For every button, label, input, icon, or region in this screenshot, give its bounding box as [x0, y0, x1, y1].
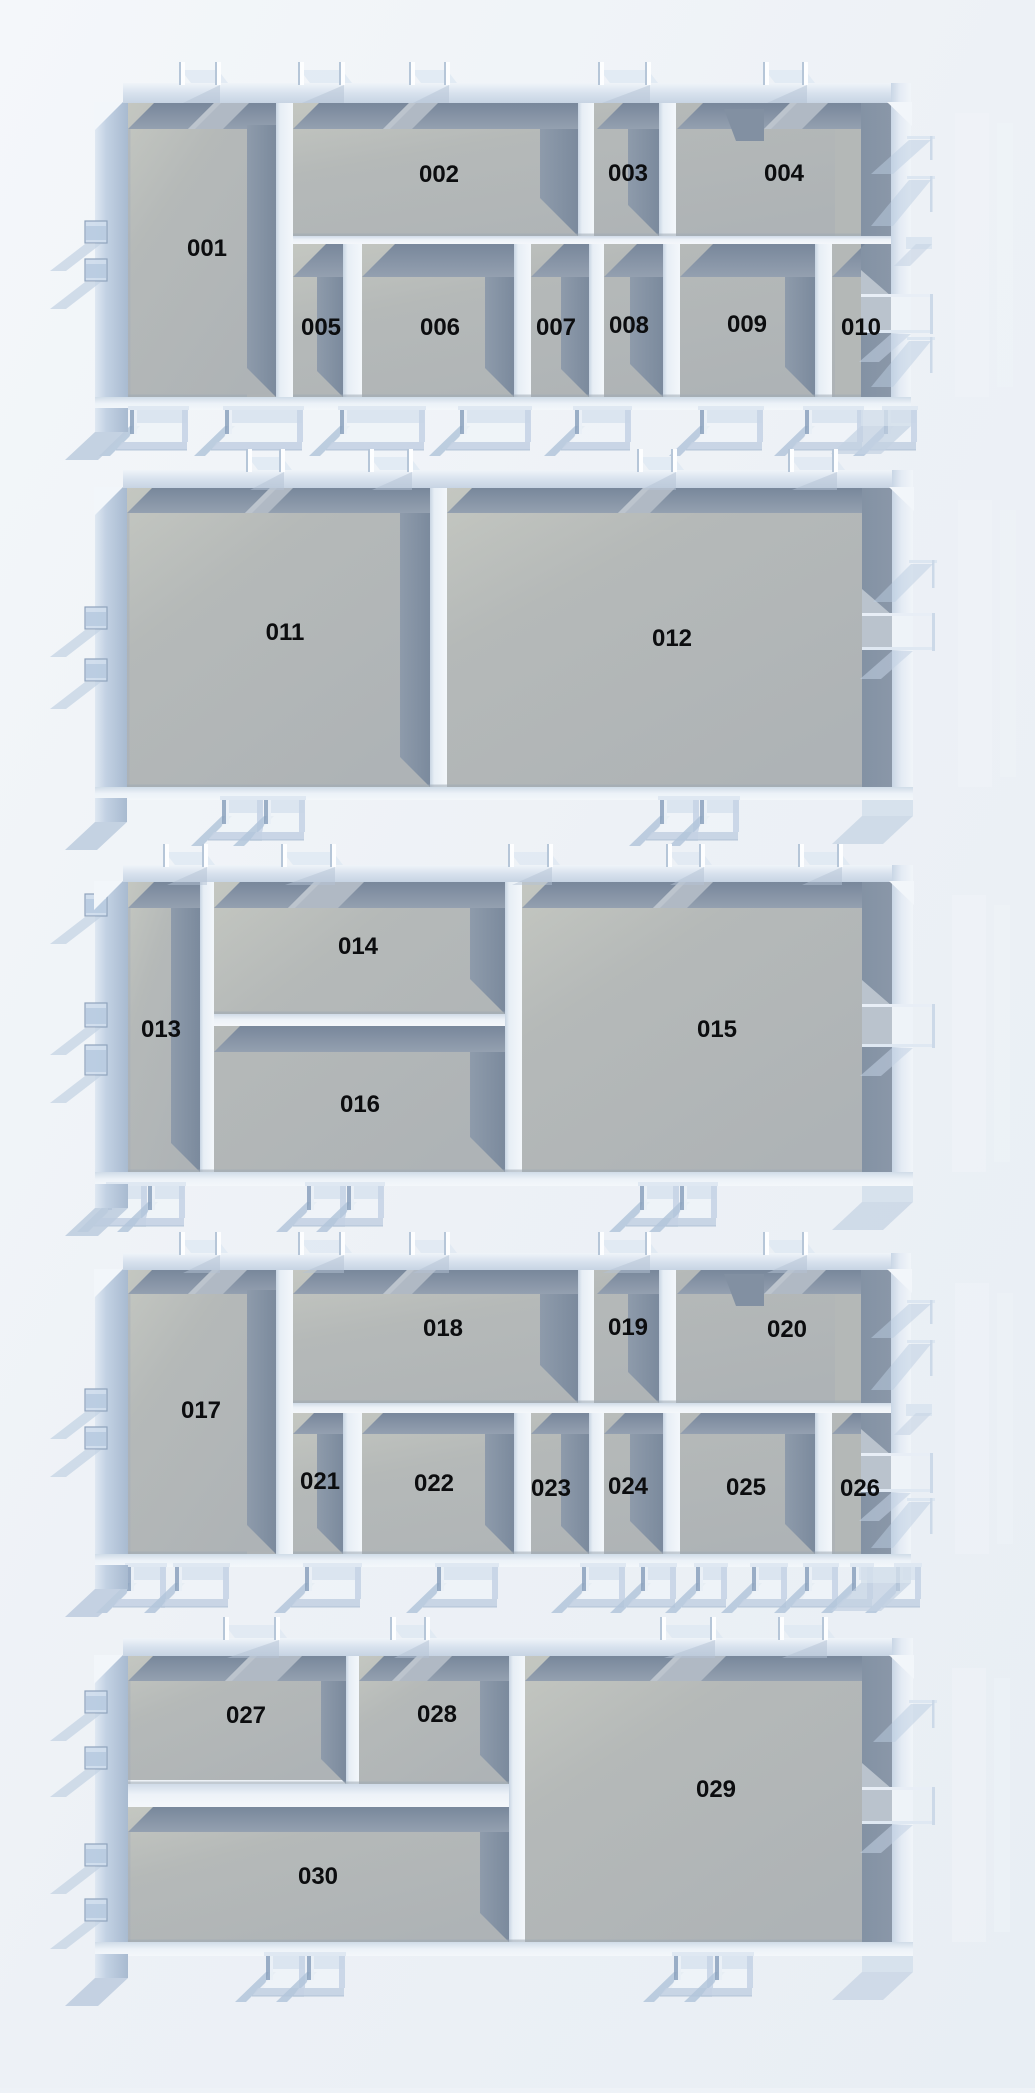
- svg-text:018: 018: [423, 1315, 463, 1342]
- svg-text:020: 020: [767, 1316, 807, 1343]
- svg-text:019: 019: [608, 1314, 648, 1341]
- svg-text:002: 002: [419, 161, 459, 188]
- svg-text:013: 013: [141, 1016, 181, 1043]
- svg-text:030: 030: [298, 1863, 338, 1890]
- svg-text:028: 028: [417, 1701, 457, 1728]
- svg-text:021: 021: [300, 1468, 340, 1495]
- svg-text:014: 014: [338, 933, 379, 960]
- svg-text:022: 022: [414, 1470, 454, 1497]
- svg-text:025: 025: [726, 1474, 766, 1501]
- svg-text:026: 026: [840, 1475, 880, 1502]
- svg-text:006: 006: [420, 314, 460, 341]
- svg-text:023: 023: [531, 1475, 571, 1502]
- svg-text:015: 015: [697, 1016, 737, 1043]
- svg-text:011: 011: [266, 619, 305, 646]
- svg-text:027: 027: [226, 1702, 266, 1729]
- svg-text:001: 001: [187, 235, 227, 262]
- svg-text:029: 029: [696, 1776, 736, 1803]
- svg-text:010: 010: [841, 314, 881, 341]
- svg-text:008: 008: [609, 312, 649, 339]
- svg-text:024: 024: [608, 1473, 649, 1500]
- svg-text:007: 007: [536, 314, 576, 341]
- svg-text:003: 003: [608, 160, 648, 187]
- svg-text:004: 004: [764, 160, 805, 187]
- svg-text:016: 016: [340, 1091, 380, 1118]
- svg-text:017: 017: [181, 1397, 221, 1424]
- svg-text:005: 005: [301, 314, 341, 341]
- svg-text:009: 009: [727, 311, 767, 338]
- svg-text:012: 012: [652, 625, 692, 652]
